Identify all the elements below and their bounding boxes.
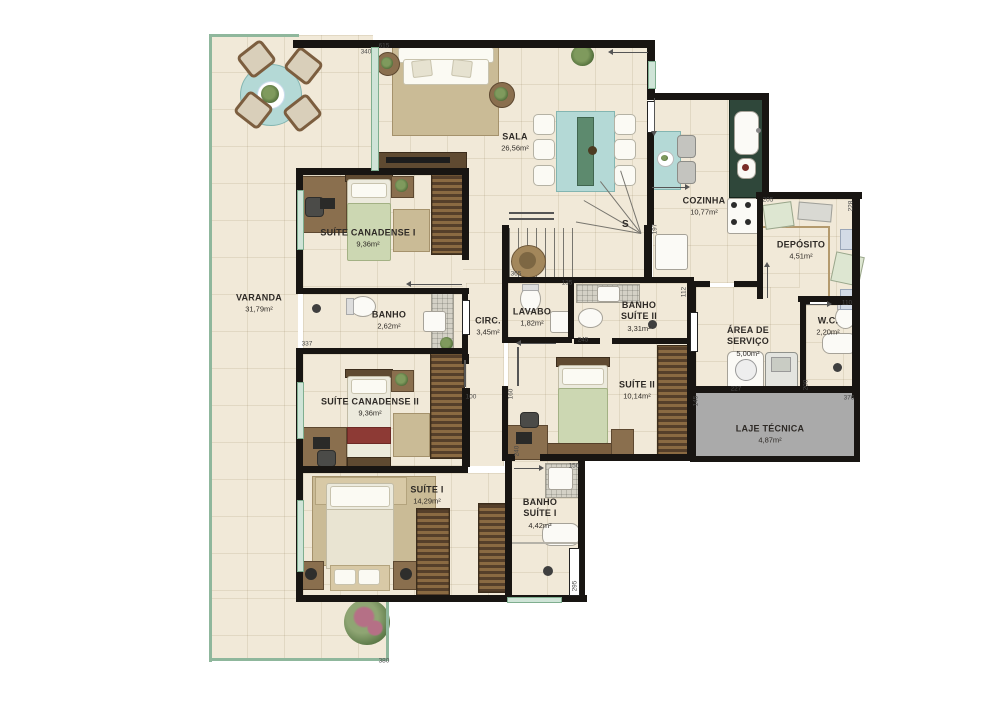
bench-cushion [334,569,356,585]
wall [690,386,856,393]
wall [502,283,508,341]
varanda-border-bottom [209,658,389,661]
sofa-cushion [451,59,473,78]
storage-item [797,202,832,223]
window [507,597,562,603]
wall [854,392,860,462]
wardrobe [431,354,464,458]
food-dot [661,155,668,161]
dining-chair [533,139,555,160]
lamp-icon [400,568,412,580]
wall [502,386,508,461]
wall [734,281,758,287]
bed-runner [347,427,391,444]
window [297,500,304,572]
wall [690,392,696,462]
door-arrow [767,264,768,298]
pillow [562,368,604,385]
varanda-border-top [209,34,299,37]
nightstand [611,429,634,456]
wall [462,388,470,467]
plant-icon [261,85,279,103]
dining-chair [533,165,555,186]
wall [762,93,769,199]
wall [690,456,860,462]
kitchen-sink [734,111,759,155]
tv [386,157,450,163]
burner-icon [745,219,751,225]
duvet [326,509,394,569]
door-leaf [462,300,470,335]
wall [296,288,469,294]
plant-icon [395,373,408,386]
computer [313,437,330,449]
dining-chair [533,114,555,135]
wall [296,348,468,354]
bench-cushion [358,569,380,585]
door-arrow [408,284,462,285]
wall [756,192,862,199]
wall [800,299,806,392]
wall [540,454,694,461]
wall [696,281,710,287]
desk-chair [317,450,336,467]
door-leaf [690,312,698,352]
wall [574,338,600,344]
wall [647,93,769,100]
shower-head-icon [648,320,657,329]
fridge [655,234,688,270]
toilet-tank [346,298,354,315]
toilet-tank [522,284,539,291]
shower-head-icon [833,363,842,372]
floorplan-canvas: S VARANDA31,79m²SALA26,56m²COZINHA10,77m… [0,0,1000,707]
lamp-icon [305,568,317,580]
pillow [330,486,390,507]
door-leaf [464,360,466,387]
window [297,382,304,439]
plant-icon [395,179,408,192]
shower-divider [510,542,578,544]
bed-cover [347,203,391,261]
door-arrow [652,187,688,188]
tank-basin [771,357,791,372]
varanda-border-right [386,598,389,661]
plant-icon [571,45,594,66]
wall [647,133,654,225]
burner-icon [731,202,737,208]
door-leaf [517,347,519,386]
shower-head-icon [543,566,553,576]
wardrobe [658,346,690,456]
bath-sink [423,311,446,332]
circ-floor [466,283,504,466]
window [297,190,304,250]
centerpiece [588,146,597,155]
burner-icon [731,219,737,225]
stairs-rail [509,212,554,214]
plant-icon [381,57,393,69]
entry-arrow [610,52,648,53]
laje-tecnica-slab [696,392,854,456]
plant-icon [494,87,508,101]
computer [516,432,532,444]
wall [502,225,509,280]
wall [502,277,694,283]
storage-box [762,201,794,230]
washer-drum [735,359,757,381]
varanda-border-left [209,34,212,662]
wall [296,168,469,175]
wall [505,461,512,602]
kitchen-chair [677,161,696,184]
wall [568,283,574,339]
wall [644,225,652,283]
tree-bloom [366,620,384,636]
burner-icon [745,202,751,208]
wall [462,290,468,300]
pillow [351,379,387,394]
wall [293,40,655,48]
wardrobe [417,509,449,597]
plant-basket-inner [519,252,536,269]
faucet-icon [756,128,761,133]
door-arrow [514,468,542,469]
wall [502,454,515,461]
bath-sink [597,286,620,302]
wall [612,338,694,344]
bed-cover [558,388,608,444]
dining-chair [614,139,636,160]
wall [852,192,860,398]
wardrobe [432,175,465,254]
deposito-shelf-line [828,226,830,298]
wall [462,168,469,260]
window [648,61,656,89]
computer [320,198,335,209]
window-varanda-sala [371,47,379,171]
kitchen-chair [677,135,696,158]
bath-sink [548,467,573,490]
stairs-label: S [622,219,629,230]
shower-head-icon [312,304,321,313]
door-arrow [806,304,830,305]
shower-door [569,548,580,596]
door-arrow [518,343,556,344]
dining-chair [614,114,636,135]
sofa-cushion [411,59,433,78]
desk-chair [520,412,539,428]
door-swing-line [654,98,655,134]
toilet [578,308,603,328]
pillow [351,183,387,198]
wall [296,466,468,473]
appliance-dot [742,164,749,171]
bedroom-rug [393,413,430,457]
stairs-rail [509,218,554,220]
bedroom-rug [393,209,430,252]
